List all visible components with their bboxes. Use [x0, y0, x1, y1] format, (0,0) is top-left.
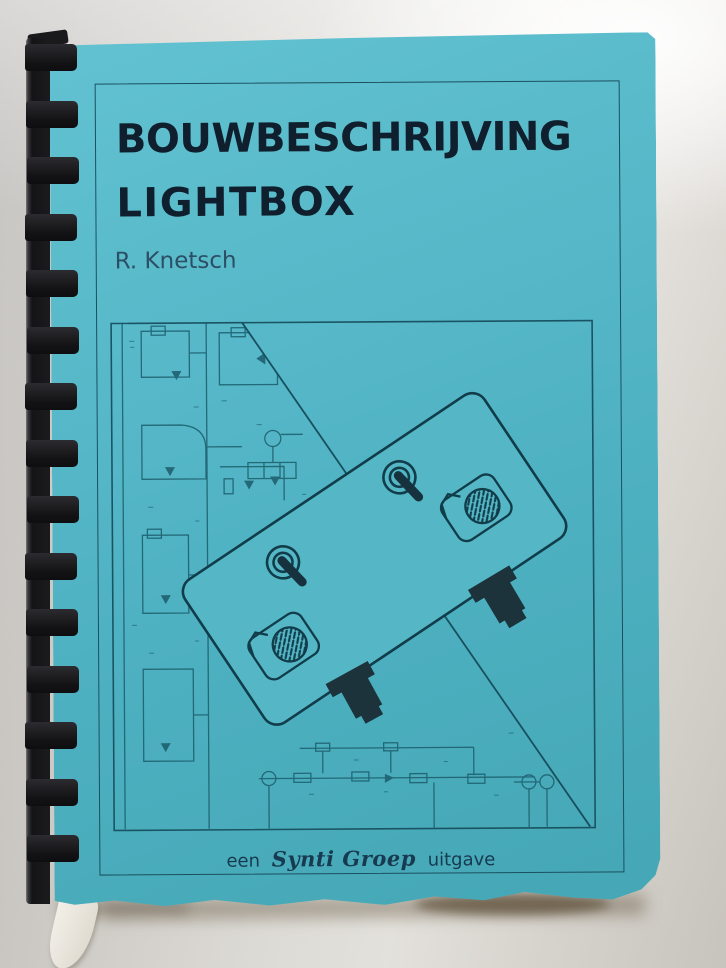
- comb-tooth: [27, 666, 79, 693]
- comb-tooth: [26, 440, 78, 467]
- comb-tooth: [26, 101, 78, 128]
- comb-tooth: [25, 553, 77, 580]
- comb-tooth: [26, 779, 78, 806]
- comb-tooth: [25, 722, 77, 749]
- comb-tooth: [27, 327, 79, 354]
- cover-title-line1: BOUWBESCHRIJVING: [116, 117, 572, 160]
- comb-tooth: [25, 44, 77, 71]
- photo-of-booklet: BOUWBESCHRIJVING LIGHTBOX R. Knetsch een…: [0, 0, 726, 968]
- comb-tooth: [27, 835, 79, 862]
- comb-tooth: [25, 214, 77, 241]
- publisher-line: een Synti Groep uitgave: [99, 844, 622, 872]
- publisher-suffix: uitgave: [428, 849, 496, 870]
- comb-tooth: [26, 270, 78, 297]
- booklet-cover: BOUWBESCHRIJVING LIGHTBOX R. Knetsch een…: [49, 32, 660, 908]
- publisher-prefix: een: [226, 851, 260, 872]
- comb-tooth: [26, 609, 78, 636]
- cover-author: R. Knetsch: [115, 249, 237, 275]
- cover-title-line2: LIGHTBOX: [116, 182, 356, 223]
- comb-tooth: [27, 157, 79, 184]
- comb-tooth: [25, 383, 77, 410]
- publisher-brand-name: Synti Groep: [272, 846, 416, 872]
- comb-tooth: [27, 496, 79, 523]
- comb-binding: [24, 36, 80, 910]
